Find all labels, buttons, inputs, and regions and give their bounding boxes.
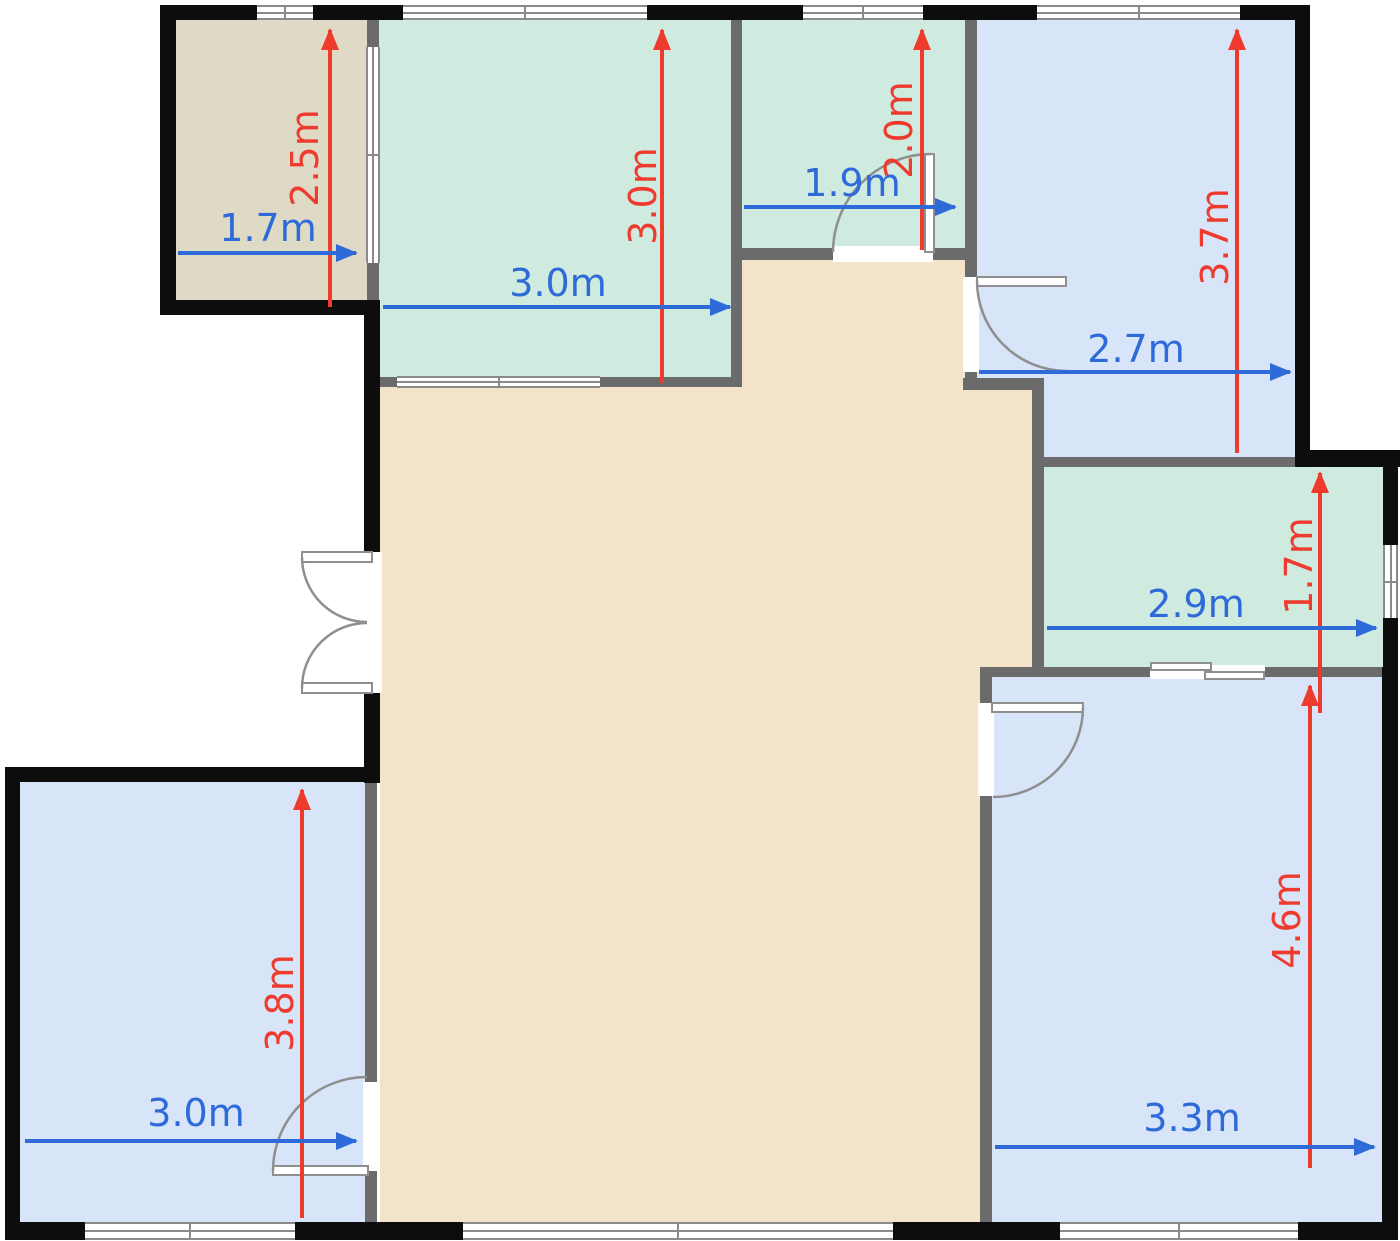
dim-label-top-left-width: 1.7m bbox=[219, 209, 316, 247]
dim-label-top-left-height: 2.5m bbox=[286, 109, 324, 206]
dim-label-top-right-width: 2.7m bbox=[1087, 330, 1184, 368]
door-swing-arc bbox=[993, 707, 1083, 797]
dim-label-green-small-width: 1.9m bbox=[803, 164, 900, 202]
dim-label-bottom-left-height: 3.8m bbox=[261, 954, 299, 1051]
dim-label-top-right-height: 3.7m bbox=[1196, 188, 1234, 285]
dim-label-bottom-right-width: 3.3m bbox=[1143, 1099, 1240, 1137]
dim-label-bottom-left-width: 3.0m bbox=[147, 1094, 244, 1132]
dim-label-mid-right-width: 2.9m bbox=[1147, 585, 1244, 623]
door-leaf bbox=[273, 1166, 368, 1175]
door-leaf bbox=[992, 703, 1083, 712]
door-swing-arc bbox=[273, 1077, 367, 1171]
floor-plan: 2.5m 1.7m 3.0m 3.0m 2.0m 1.9m 3.7m 2.7m … bbox=[0, 0, 1400, 1241]
dim-label-green-large-width: 3.0m bbox=[509, 264, 606, 302]
dim-label-green-large-height: 3.0m bbox=[624, 147, 662, 244]
door-swing-arc bbox=[302, 557, 367, 622]
door-swing-arc bbox=[977, 281, 1067, 371]
dim-label-mid-right-height: 1.7m bbox=[1280, 517, 1318, 614]
entry-door-leaf bbox=[302, 683, 372, 693]
door-leaf bbox=[925, 154, 934, 252]
dim-label-bottom-right-height: 4.6m bbox=[1268, 871, 1306, 968]
door-leaf bbox=[977, 277, 1066, 286]
entry-door-leaf bbox=[302, 552, 372, 562]
door-swing-arc bbox=[302, 623, 367, 688]
